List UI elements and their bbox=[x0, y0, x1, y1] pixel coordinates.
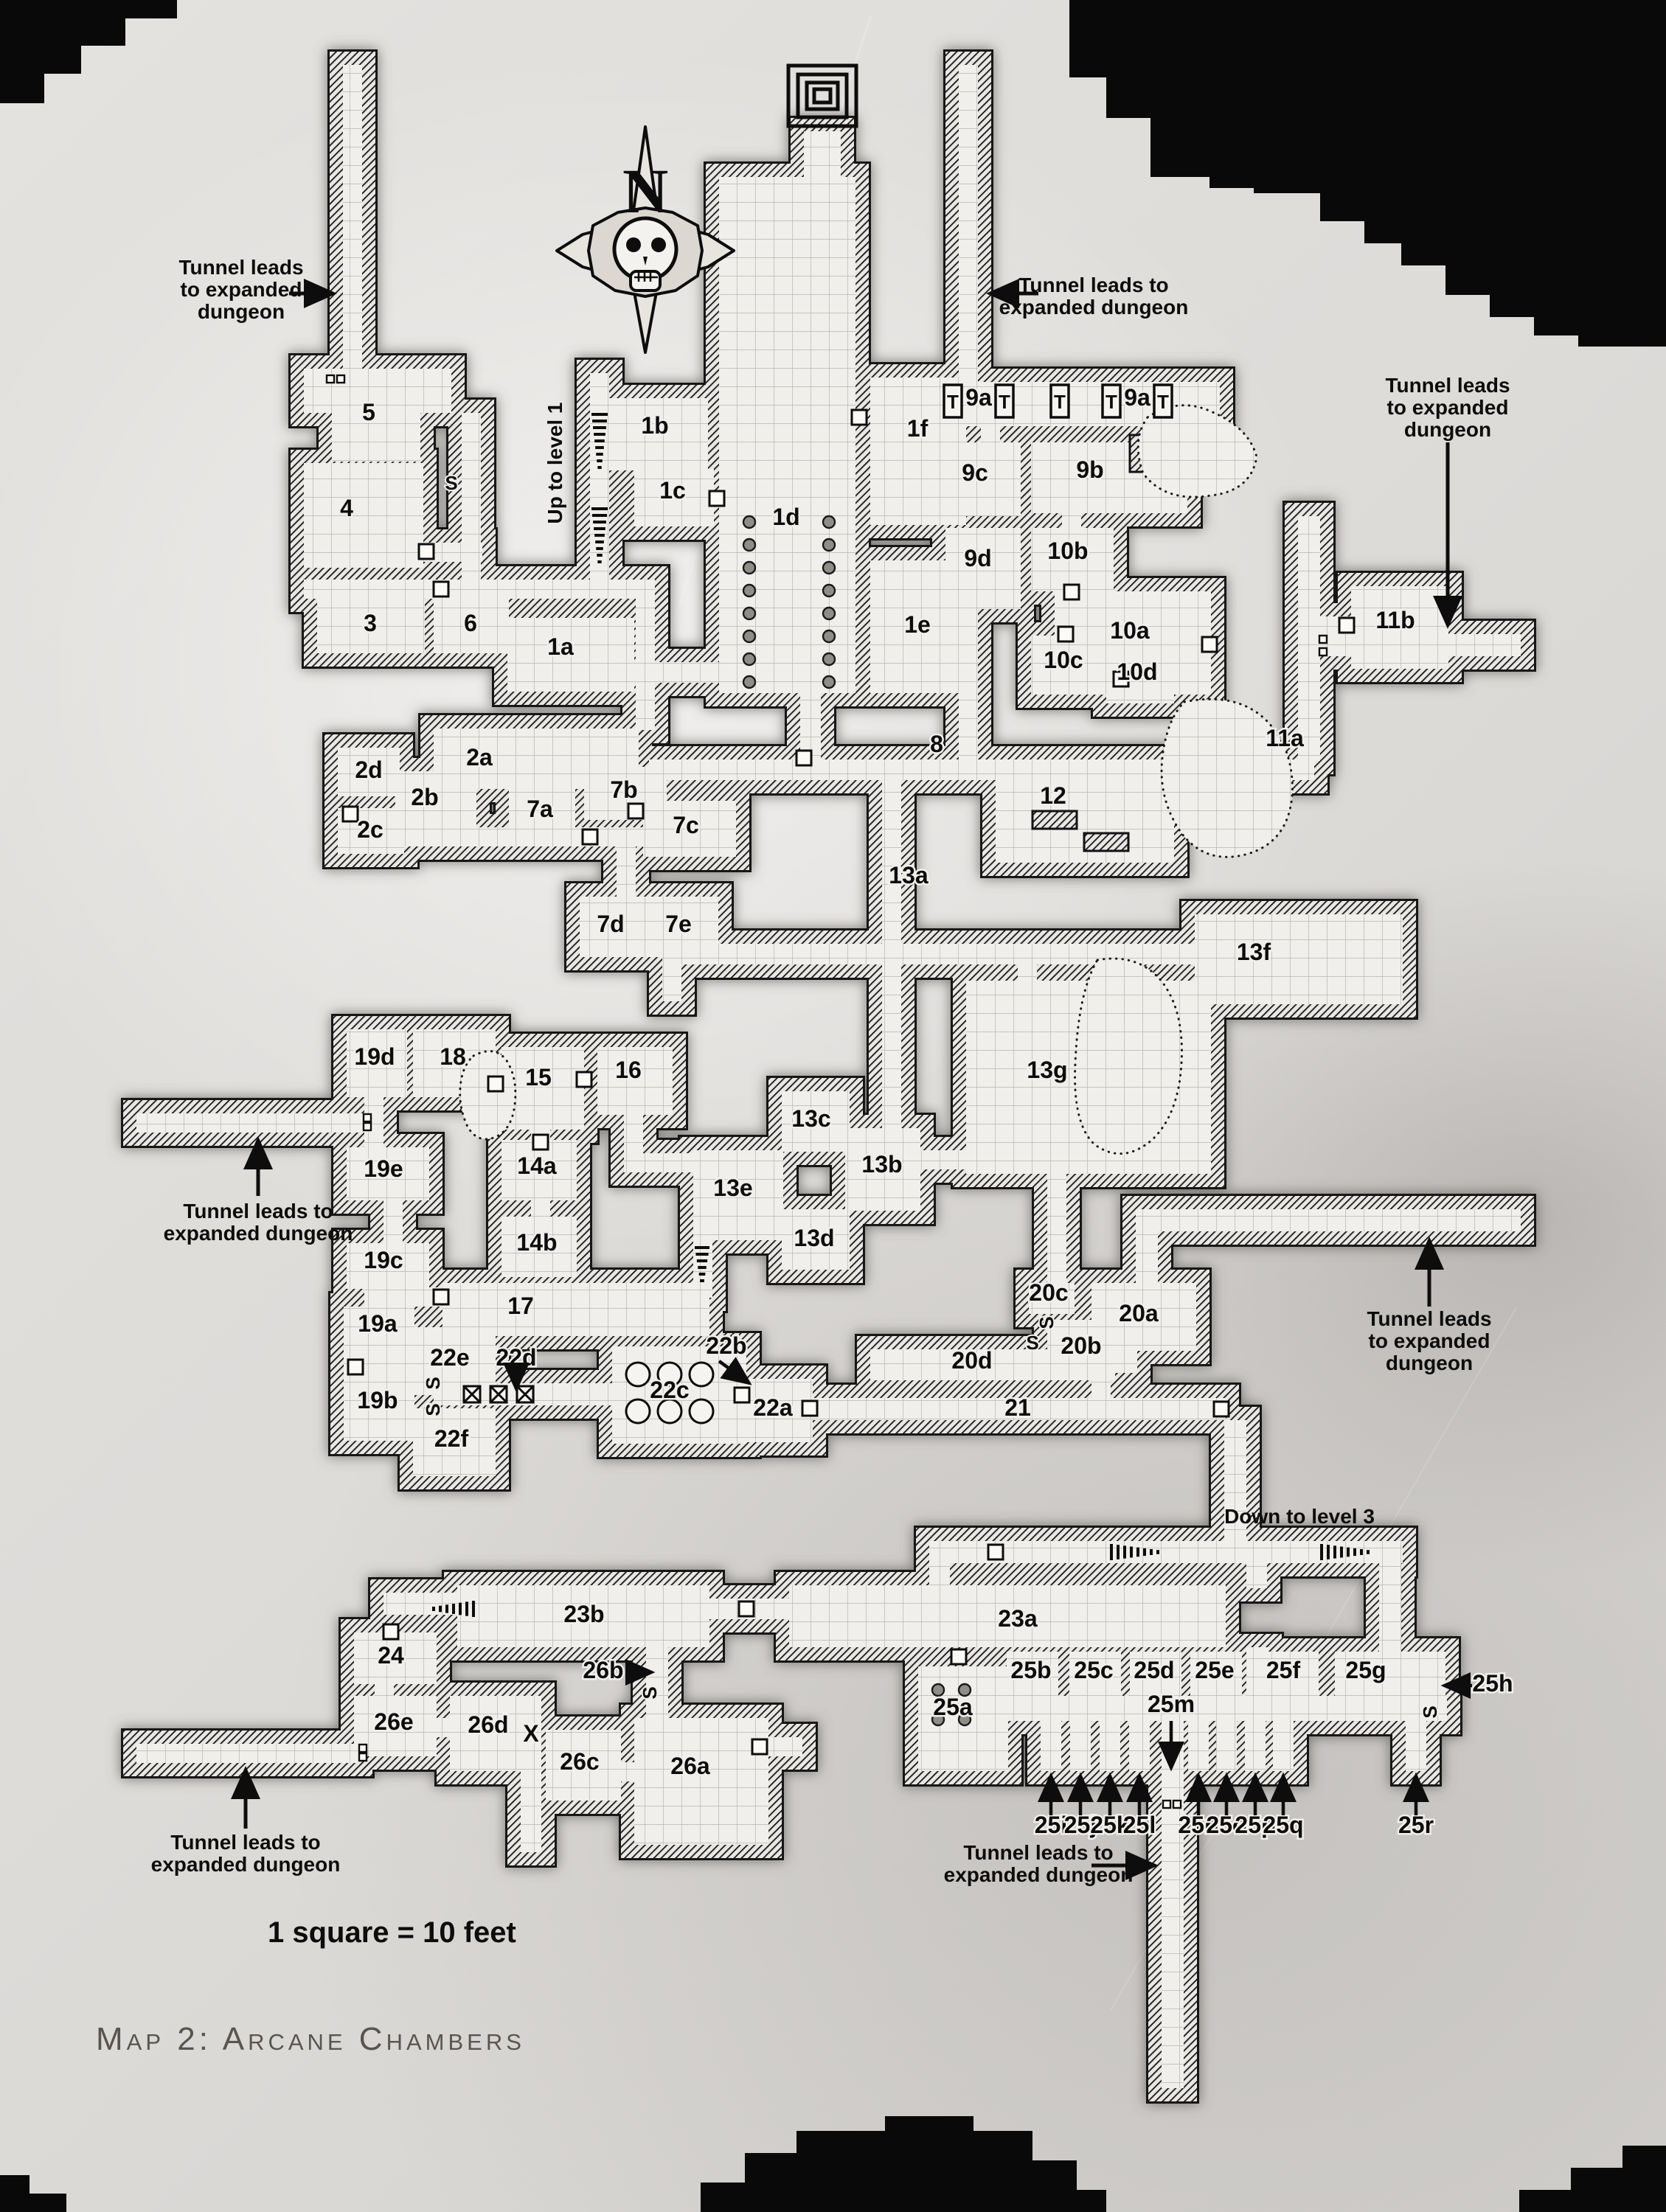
door-stud bbox=[364, 1114, 371, 1121]
stairs bbox=[1110, 1544, 1113, 1560]
column bbox=[690, 1363, 713, 1386]
stairs bbox=[695, 1246, 709, 1249]
annotation-line: expanded dungeon bbox=[999, 296, 1189, 319]
stairs bbox=[597, 466, 601, 469]
room-label: 25i bbox=[1035, 1812, 1067, 1838]
room-label: 4 bbox=[340, 495, 353, 521]
room-label: 25m bbox=[1148, 1691, 1195, 1717]
room-label: 20c bbox=[1029, 1279, 1068, 1306]
room-floor bbox=[462, 413, 481, 600]
stairs bbox=[1333, 1545, 1336, 1558]
annotation-line: Tunnel leads bbox=[1367, 1307, 1491, 1330]
annotation-line: Tunnel leads bbox=[178, 256, 303, 279]
room-label: 25e bbox=[1195, 1657, 1234, 1683]
annotation-line: dungeon bbox=[1404, 418, 1491, 441]
room-label: 26e bbox=[374, 1708, 413, 1735]
room-label: 26d bbox=[468, 1711, 508, 1738]
room-label: 9a bbox=[965, 384, 992, 411]
door-marker bbox=[488, 1077, 503, 1091]
room-label: 1d bbox=[772, 504, 799, 530]
door-stud bbox=[1319, 648, 1327, 655]
room-label: 25d bbox=[1134, 1657, 1174, 1683]
pillar bbox=[743, 653, 755, 665]
cave-edge bbox=[1138, 406, 1257, 497]
stairs bbox=[459, 1603, 462, 1615]
room-floor bbox=[1129, 1718, 1150, 1771]
stairs bbox=[596, 453, 603, 456]
column bbox=[626, 1363, 650, 1386]
pillar bbox=[743, 676, 755, 688]
room-floor bbox=[624, 1153, 698, 1172]
room-label: 11b bbox=[1375, 607, 1415, 633]
stairs bbox=[1156, 1550, 1159, 1554]
room-label: 2a bbox=[466, 744, 493, 771]
t-pillar-label: T bbox=[947, 391, 959, 413]
portal-entrance bbox=[814, 89, 830, 102]
portal-entrance bbox=[807, 83, 838, 109]
room-floor bbox=[951, 1696, 1447, 1721]
stairs bbox=[700, 1279, 704, 1282]
stairs bbox=[445, 1604, 448, 1613]
room-floor bbox=[678, 944, 886, 964]
column bbox=[690, 1399, 713, 1423]
room-label: 2d bbox=[355, 757, 382, 783]
stairs bbox=[1360, 1549, 1363, 1555]
room-label: 7e bbox=[665, 911, 692, 937]
annotation-line: Tunnel leads bbox=[1385, 374, 1510, 397]
room-label: 22a bbox=[753, 1394, 793, 1421]
map-annotation: Down to level 3 bbox=[1224, 1505, 1375, 1528]
annotation-line: Tunnel leads to bbox=[1018, 274, 1168, 296]
room-label: 25q bbox=[1263, 1812, 1303, 1838]
stairs bbox=[465, 1601, 468, 1615]
door-stud bbox=[359, 1745, 367, 1752]
room-floor bbox=[136, 1744, 359, 1763]
room-floor bbox=[1062, 509, 1081, 531]
stairs bbox=[1130, 1547, 1133, 1558]
stairs bbox=[1353, 1548, 1356, 1556]
t-pillar-label: T bbox=[1157, 391, 1169, 413]
room-label: 11a bbox=[1266, 725, 1304, 751]
room-label: 1a bbox=[547, 633, 574, 660]
skull-eye-left bbox=[626, 237, 641, 252]
stairs bbox=[699, 1273, 706, 1276]
inner-wall bbox=[1084, 833, 1128, 851]
map-annotation: Tunnel leadsto expandeddungeon bbox=[1385, 374, 1510, 441]
door-marker bbox=[988, 1545, 1003, 1559]
room-floor bbox=[634, 1718, 768, 1845]
secret-door-mark: S bbox=[1026, 1332, 1038, 1354]
annotation-line: to expanded bbox=[181, 278, 302, 301]
column bbox=[626, 1399, 650, 1423]
room-label: 10a bbox=[1110, 617, 1150, 644]
room-label: 9d bbox=[964, 545, 991, 571]
stairs bbox=[1367, 1550, 1370, 1554]
stairs bbox=[597, 459, 602, 462]
room-label: 9a bbox=[1124, 384, 1150, 411]
secret-door-mark: S bbox=[422, 1403, 444, 1416]
pillar bbox=[743, 539, 755, 551]
page-title: Map 2: Arcane Chambers bbox=[96, 2021, 525, 2057]
pillar bbox=[823, 676, 835, 688]
room-label: 22f bbox=[434, 1425, 469, 1452]
room-floor bbox=[1273, 1718, 1294, 1771]
door-stud bbox=[359, 1753, 367, 1761]
room-label: 25g bbox=[1345, 1657, 1386, 1683]
door-marker bbox=[583, 829, 597, 844]
annotation-line: dungeon bbox=[1386, 1352, 1473, 1374]
stairs bbox=[698, 1266, 707, 1269]
secret-door-mark: S bbox=[1035, 1316, 1058, 1329]
room-floor bbox=[1245, 1718, 1266, 1771]
room-floor bbox=[1018, 959, 1037, 991]
annotation-line: expanded dungeon bbox=[151, 1853, 341, 1876]
stairs bbox=[595, 446, 604, 449]
stairs bbox=[597, 554, 602, 557]
map-annotation: Tunnel leads toexpanded dungeon bbox=[999, 274, 1189, 319]
room-label: 26b bbox=[583, 1657, 623, 1683]
room-label: 26c bbox=[560, 1748, 599, 1775]
stairs bbox=[592, 420, 607, 422]
room-floor bbox=[646, 1647, 668, 1721]
room-label: 22d bbox=[496, 1344, 536, 1371]
room-label: 13c bbox=[791, 1105, 830, 1132]
room-floor bbox=[1047, 1172, 1066, 1284]
stairs bbox=[1320, 1544, 1323, 1560]
t-pillar-label: T bbox=[1054, 391, 1066, 413]
room-label: 8 bbox=[930, 731, 943, 757]
room-label: 13a bbox=[889, 862, 929, 888]
inner-wall bbox=[1032, 811, 1077, 829]
room-label: 9c bbox=[962, 459, 988, 486]
skull-eye-right bbox=[651, 237, 666, 252]
pillar bbox=[823, 585, 835, 597]
room-floor bbox=[1246, 1559, 1267, 1588]
room-floor bbox=[981, 426, 1000, 445]
room-label: 7d bbox=[597, 911, 624, 937]
stairs bbox=[695, 1253, 708, 1256]
room-floor bbox=[804, 131, 841, 180]
room-label: 7c bbox=[673, 812, 699, 838]
stairs bbox=[594, 439, 605, 442]
door-marker bbox=[739, 1601, 754, 1616]
pillar bbox=[823, 608, 835, 619]
stairs bbox=[439, 1606, 442, 1613]
room-floor bbox=[1091, 1377, 1111, 1399]
room-label: 3 bbox=[364, 610, 377, 636]
stairs bbox=[593, 426, 606, 429]
stairs bbox=[595, 540, 604, 543]
door-marker bbox=[1058, 627, 1073, 641]
door-stud bbox=[1173, 1801, 1181, 1808]
room-label: 24 bbox=[378, 1642, 404, 1669]
door-marker bbox=[802, 1401, 817, 1416]
room-label: 5 bbox=[362, 399, 375, 425]
room-label: 14b bbox=[516, 1229, 557, 1256]
door-marker bbox=[533, 1135, 548, 1150]
room-label: 19c bbox=[364, 1247, 403, 1273]
room-floor bbox=[959, 65, 978, 383]
room-label: 2b bbox=[411, 784, 438, 810]
room-label: 7a bbox=[527, 796, 553, 822]
room-label: 13d bbox=[794, 1225, 834, 1251]
map-annotation: Tunnel leads toexpanded dungeon bbox=[151, 1831, 341, 1876]
room-label: 21 bbox=[1004, 1394, 1031, 1421]
door-marker bbox=[752, 1739, 767, 1754]
stairs bbox=[452, 1604, 455, 1614]
annotation-line: Tunnel leads to bbox=[963, 1841, 1113, 1864]
room-label: 26a bbox=[670, 1753, 710, 1779]
stairs bbox=[432, 1607, 435, 1611]
room-label: 1c bbox=[659, 477, 686, 504]
room-label: 20b bbox=[1061, 1332, 1101, 1359]
pillar bbox=[743, 562, 755, 574]
room-floor bbox=[617, 846, 636, 897]
room-floor bbox=[304, 463, 423, 568]
room-label: 13e bbox=[713, 1175, 752, 1201]
room-label: 12 bbox=[1040, 782, 1066, 809]
map-annotation: Up to level 1 bbox=[544, 403, 566, 524]
map-annotation: Tunnel leadsto expandeddungeon bbox=[178, 256, 303, 323]
t-pillar-label: T bbox=[1106, 391, 1117, 413]
stairs bbox=[594, 534, 605, 537]
room-floor bbox=[1070, 1718, 1091, 1771]
room-label: 9b bbox=[1076, 456, 1103, 483]
room-label: 10c bbox=[1044, 647, 1083, 673]
stairs bbox=[597, 560, 601, 563]
secret-door-mark: S bbox=[422, 1377, 444, 1389]
room-label: X bbox=[523, 1720, 539, 1747]
pillar bbox=[743, 516, 755, 528]
room-label: 20d bbox=[951, 1347, 992, 1374]
compass-north-letter: N bbox=[622, 156, 668, 226]
room-floor bbox=[1216, 1718, 1237, 1771]
stairs bbox=[592, 514, 607, 517]
door-marker bbox=[1064, 585, 1079, 599]
door-stud bbox=[327, 375, 334, 383]
scale-note: 1 square = 10 feet bbox=[268, 1916, 516, 1949]
room-label: 13b bbox=[861, 1151, 902, 1178]
room-floor bbox=[1195, 914, 1403, 1004]
room-label: 1e bbox=[904, 611, 931, 638]
room-floor bbox=[136, 1113, 374, 1133]
door-marker bbox=[577, 1072, 591, 1087]
room-floor bbox=[882, 963, 901, 1137]
dungeon-map: TTTTTSSSSSSS 54362a2b2c2d7a7b7c7d7e1a1b1… bbox=[0, 0, 1666, 2212]
secret-door-mark: S bbox=[1419, 1705, 1441, 1718]
room-label: 6 bbox=[464, 610, 477, 636]
room-floor bbox=[1100, 1718, 1120, 1771]
torn-edge bbox=[0, 2175, 66, 2212]
door-marker bbox=[343, 807, 358, 821]
room-label: 19b bbox=[357, 1387, 398, 1413]
torn-edge bbox=[0, 0, 177, 103]
room-label: 19a bbox=[358, 1310, 398, 1337]
room-label: 23a bbox=[998, 1605, 1038, 1632]
room-floor bbox=[1379, 1541, 1401, 1653]
stairs bbox=[1123, 1545, 1126, 1558]
door-marker bbox=[628, 804, 643, 818]
room-floor bbox=[1406, 1718, 1426, 1771]
stairs bbox=[591, 507, 608, 510]
room-label: 7b bbox=[610, 776, 637, 803]
stairs bbox=[1143, 1548, 1146, 1556]
door-stud bbox=[337, 375, 344, 383]
pillar bbox=[743, 608, 755, 619]
door-stud bbox=[1163, 1801, 1170, 1808]
torn-edge bbox=[701, 2116, 1106, 2212]
room-label: 16 bbox=[615, 1057, 642, 1083]
stairs bbox=[1136, 1548, 1139, 1557]
annotation-line: to expanded bbox=[1387, 396, 1509, 419]
stairs bbox=[593, 521, 606, 524]
room-floor bbox=[1162, 1719, 1184, 2088]
room-floor bbox=[1188, 1718, 1209, 1771]
pillar bbox=[823, 630, 835, 642]
stairs bbox=[1340, 1547, 1343, 1558]
room-label: 17 bbox=[507, 1293, 534, 1319]
room-floor bbox=[1041, 1718, 1061, 1771]
room-floor bbox=[617, 1762, 639, 1781]
pillar bbox=[823, 516, 835, 528]
stairs bbox=[596, 547, 603, 550]
room-label: 25r bbox=[1398, 1812, 1434, 1838]
map-annotation: Tunnel leads toexpanded dungeon bbox=[164, 1200, 353, 1245]
room-floor bbox=[1320, 634, 1521, 656]
room-label: 19e bbox=[364, 1155, 403, 1182]
room-label: 15 bbox=[525, 1064, 552, 1091]
stairs bbox=[1347, 1548, 1350, 1557]
room-floor bbox=[628, 662, 743, 683]
room-floor bbox=[521, 1696, 541, 1852]
annotation-line: Tunnel leads to bbox=[170, 1831, 320, 1854]
room-floor bbox=[343, 65, 362, 378]
door-marker bbox=[348, 1360, 363, 1374]
room-floor bbox=[383, 1199, 403, 1246]
t-pillar-label: T bbox=[999, 391, 1010, 413]
room-label: 1f bbox=[907, 415, 929, 442]
cave-edge bbox=[460, 1051, 516, 1139]
room-label: 25f bbox=[1266, 1657, 1301, 1683]
annotation-line: dungeon bbox=[198, 300, 285, 323]
room-floor bbox=[1136, 1231, 1158, 1284]
door-stud bbox=[1319, 636, 1327, 643]
room-label: 25h bbox=[1472, 1670, 1513, 1697]
room-floor bbox=[959, 609, 978, 761]
door-marker bbox=[735, 1388, 749, 1402]
room-label: 22e bbox=[430, 1344, 469, 1371]
stairs bbox=[1327, 1545, 1330, 1559]
room-label: 10d bbox=[1117, 658, 1157, 685]
room-floor bbox=[304, 580, 655, 599]
door-marker bbox=[852, 410, 867, 425]
room-floor bbox=[332, 378, 420, 462]
secret-door-mark: S bbox=[445, 472, 457, 494]
door-marker bbox=[434, 582, 448, 597]
stairs bbox=[472, 1601, 475, 1617]
stairs bbox=[697, 1259, 707, 1262]
room-label: 20a bbox=[1119, 1300, 1159, 1326]
annotation-line: Up to level 1 bbox=[544, 403, 566, 524]
pillar bbox=[823, 539, 835, 551]
room-floor bbox=[919, 1150, 971, 1169]
room-label: 13g bbox=[1027, 1057, 1067, 1083]
stairs bbox=[1150, 1549, 1153, 1555]
room-label: 25c bbox=[1074, 1657, 1113, 1683]
pillar bbox=[823, 653, 835, 665]
annotation-line: Down to level 3 bbox=[1224, 1505, 1375, 1528]
pillar bbox=[743, 585, 755, 597]
room-label: 18 bbox=[440, 1043, 466, 1070]
door-marker bbox=[709, 491, 724, 506]
annotation-line: Tunnel leads to bbox=[183, 1200, 333, 1222]
room-label: 25l bbox=[1123, 1812, 1156, 1838]
room-label: 1b bbox=[641, 412, 668, 439]
room-label: 22c bbox=[650, 1377, 689, 1403]
pillar bbox=[823, 562, 835, 574]
door-stud bbox=[364, 1123, 371, 1130]
door-marker bbox=[1339, 618, 1354, 633]
room-label: 22b bbox=[706, 1332, 746, 1359]
map-annotation: Tunnel leadsto expandeddungeon bbox=[1367, 1307, 1491, 1374]
room-floor bbox=[531, 1199, 550, 1220]
room-floor bbox=[929, 1563, 950, 1588]
room-label: 2c bbox=[357, 816, 383, 843]
room-label: 25a bbox=[933, 1694, 973, 1720]
torn-edge bbox=[1519, 2146, 1666, 2212]
room-label: 13f bbox=[1237, 939, 1271, 965]
door-marker bbox=[796, 751, 811, 765]
door-marker bbox=[419, 544, 434, 559]
room-floor bbox=[429, 1718, 454, 1737]
stairs bbox=[1117, 1545, 1120, 1559]
door-marker bbox=[434, 1290, 448, 1304]
stairs bbox=[591, 413, 608, 416]
stairs bbox=[594, 527, 605, 530]
room-floor bbox=[1136, 1209, 1521, 1231]
room-label: 10b bbox=[1047, 538, 1088, 564]
stairs bbox=[594, 433, 605, 436]
annotation-line: to expanded bbox=[1369, 1329, 1490, 1352]
secret-door-mark: S bbox=[639, 1686, 661, 1699]
pillar bbox=[743, 630, 755, 642]
room-label: 23b bbox=[563, 1601, 604, 1627]
door-marker bbox=[1214, 1402, 1229, 1416]
room-label: 14a bbox=[517, 1152, 557, 1179]
door-marker bbox=[951, 1649, 966, 1664]
room-label: 25b bbox=[1010, 1657, 1051, 1683]
door-marker bbox=[1202, 637, 1217, 652]
annotation-line: expanded dungeon bbox=[164, 1222, 353, 1245]
door-marker bbox=[383, 1624, 398, 1639]
room-label: 19d bbox=[354, 1043, 395, 1070]
dungeon-map-page: TTTTTSSSSSSS 54362a2b2c2d7a7b7c7d7e1a1b1… bbox=[0, 0, 1666, 2212]
